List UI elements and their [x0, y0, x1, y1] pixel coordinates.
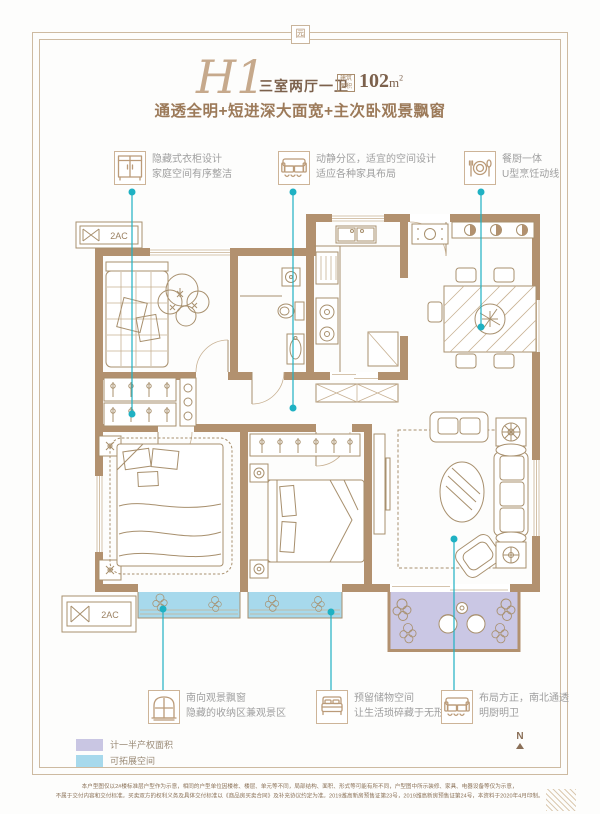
- callout-bay-window: 南向观景飘窗 隐藏的收纳区兼观景区: [186, 691, 286, 721]
- legend-label: 计一半产权面积: [110, 739, 173, 751]
- legend-swatch-blue: [76, 755, 103, 767]
- area-value: 102m2: [359, 70, 403, 93]
- brand-seal: 园: [291, 25, 310, 44]
- area-superscript: 2: [399, 74, 403, 83]
- disclaimer-line: 本户型图仅以2#楼标准层户型作为示意，相同的户型单位因楼栋、楼层、单元等不同，局…: [33, 781, 566, 791]
- bedroom-secondary: [106, 262, 209, 367]
- callout-line: 预留储物空间: [354, 691, 444, 706]
- legend-swatch-purple: [76, 739, 103, 751]
- master-bedroom: [99, 436, 232, 580]
- subtitle: 通透全明+短进深大面宽+主次卧观景飘窗: [0, 99, 600, 121]
- area-badge-top: 建筑: [338, 75, 354, 83]
- area-badge-bottom: 面积: [338, 83, 354, 91]
- callout-layout: 布局方正，南北通透 明厨明卫: [479, 691, 569, 721]
- legend-label: 可拓展空间: [110, 755, 155, 767]
- legend: 计一半产权面积 可拓展空间: [76, 739, 173, 767]
- entry: [412, 222, 534, 244]
- ac-label: 2AC: [101, 610, 119, 620]
- compass-arrow-icon: [516, 743, 524, 749]
- kitchen: [314, 226, 400, 372]
- callout-line: U型烹饪动线: [502, 167, 559, 182]
- callout-line: 家庭空间有序整洁: [152, 167, 232, 182]
- callout-line: 明厨明卫: [479, 706, 569, 721]
- hallway-storage: [316, 384, 398, 402]
- disclaimer: 本户型图仅以2#楼标准层户型作为示意，相同的户型单位因楼栋、楼层、单元等不同，局…: [33, 781, 566, 801]
- callout-line: 动静分区，适宜的空间设计: [316, 152, 436, 167]
- ac-unit-bottom: 2AC: [62, 596, 136, 632]
- callout-line: 餐厨一体: [502, 152, 559, 167]
- legend-item: 计一半产权面积: [76, 739, 173, 751]
- callout-kitchen: 餐厨一体 U型烹饪动线: [502, 152, 559, 182]
- callout-zoning: 动静分区，适宜的空间设计 适应各种家具布局: [316, 152, 436, 182]
- area-unit: m: [389, 75, 399, 90]
- wardrobe: [104, 378, 196, 426]
- area-number: 102: [359, 70, 389, 92]
- legend-item: 可拓展空间: [76, 755, 173, 767]
- callout-line: 南向观景飘窗: [186, 691, 286, 706]
- disclaimer-line: 不属于交付内容和交付标准。买卖双方的权利义务及具体交付标准以《商品房买卖合同》及…: [33, 791, 566, 801]
- dining-icon: [464, 151, 496, 185]
- window-icon: [148, 690, 180, 724]
- callout-wardrobe: 隐藏式衣柜设计 家庭空间有序整洁: [152, 152, 232, 182]
- callout-line: 隐藏的收纳区兼观景区: [186, 706, 286, 721]
- area-badge: 建筑 面积: [337, 74, 355, 92]
- compass: N: [511, 731, 529, 749]
- plan-code: H1: [196, 50, 265, 104]
- dining-area: [428, 268, 536, 368]
- ac-label: 2AC: [110, 231, 128, 241]
- corner-hatch-decoration: [546, 789, 576, 811]
- bed-icon: [316, 690, 348, 724]
- floor-plan: 2AC 2AC: [40, 185, 560, 697]
- callout-line: 布局方正，南北通透: [479, 691, 569, 706]
- callout-line: 隐藏式衣柜设计: [152, 152, 232, 167]
- callout-storage: 预留储物空间 让生活琐碎藏于无形: [354, 691, 444, 721]
- plan-type: 三室两厅一卫: [259, 76, 349, 96]
- bathroom: [240, 268, 304, 364]
- compass-north-label: N: [511, 731, 529, 742]
- callout-line: 让生活琐碎藏于无形: [354, 706, 444, 721]
- wardrobe-icon: [114, 151, 146, 185]
- sofa-icon: [441, 690, 473, 724]
- sofa-icon: [278, 151, 310, 185]
- bedroom-third: [250, 434, 364, 578]
- callout-line: 适应各种家具布局: [316, 167, 436, 182]
- living-room: [374, 412, 528, 581]
